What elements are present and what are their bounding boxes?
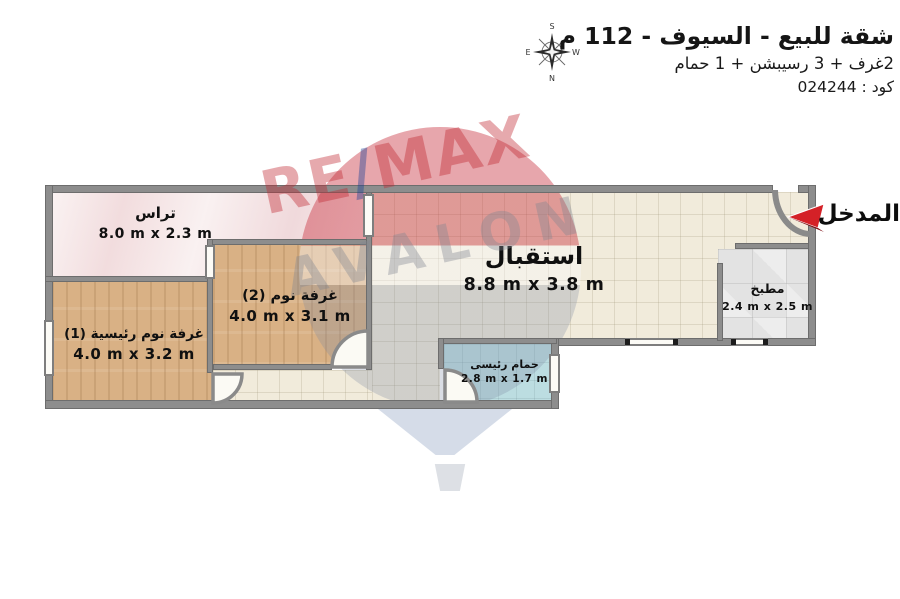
- reception-name: استقبال: [428, 241, 640, 271]
- kitchen-name: مطبخ: [721, 281, 814, 297]
- terrace-label: تراس 8.0 m x 2.3 m: [58, 204, 253, 243]
- bathroom-dims: 2.8 m x 1.7 m: [452, 373, 557, 386]
- bedroom2-name: غرفة نوم (2): [215, 287, 365, 305]
- master-bedroom-dims: 4.0 m x 3.2 m: [55, 345, 213, 364]
- entrance-label: المدخل: [820, 201, 900, 227]
- bedroom2-label: غرفة نوم (2) 4.0 m x 3.1 m: [215, 287, 365, 326]
- listing-header: شقة للبيع - السيوف - 112 م 2غرف + 3 رسيب…: [559, 22, 894, 96]
- listing-summary: 2غرف + 3 رسيبشن + 1 حمام: [559, 54, 894, 73]
- bathroom-name: حمام رئيسى: [452, 358, 557, 372]
- listing-code: كود : 024244: [559, 78, 894, 96]
- reception-label: استقبال 8.8 m x 3.8 m: [428, 241, 640, 297]
- kitchen-dims: 2.4 m x 2.5 m: [721, 300, 814, 314]
- master-bedroom-name: غرفة نوم رئيسية (1): [55, 326, 213, 343]
- door-arc-bedroom2: [332, 331, 368, 367]
- bathroom-label: حمام رئيسى 2.8 m x 1.7 m: [452, 358, 557, 386]
- kitchen-label: مطبخ 2.4 m x 2.5 m: [721, 281, 814, 313]
- terrace-dims: 8.0 m x 2.3 m: [58, 226, 253, 244]
- reception-dims: 8.8 m x 3.8 m: [428, 275, 640, 297]
- bedroom2-dims: 4.0 m x 3.1 m: [215, 307, 365, 326]
- page-title: شقة للبيع - السيوف - 112 م: [559, 22, 894, 50]
- door-arc-master-bedroom: [213, 374, 242, 403]
- master-bedroom-label: غرفة نوم رئيسية (1) 4.0 m x 3.2 m: [55, 326, 213, 364]
- terrace-name: تراس: [58, 204, 253, 223]
- floorplan-page: شقة للبيع - السيوف - 112 م 2غرف + 3 رسيب…: [0, 0, 900, 599]
